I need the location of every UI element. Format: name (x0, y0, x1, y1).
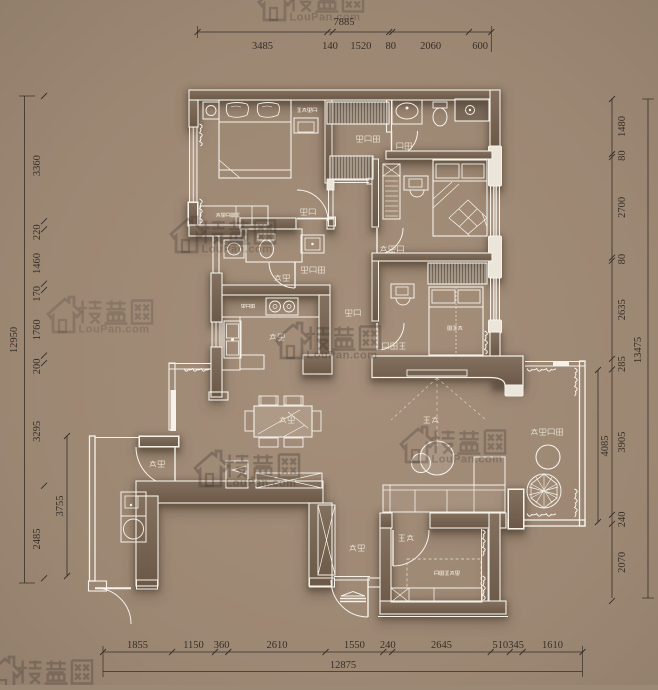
svg-text:13475: 13475 (633, 337, 644, 363)
svg-text:LouPan.com: LouPan.com (201, 244, 272, 256)
svg-text:220: 220 (32, 224, 43, 240)
svg-text:345: 345 (508, 640, 524, 651)
svg-text:2610: 2610 (266, 640, 287, 651)
svg-text:170: 170 (32, 286, 43, 302)
svg-text:80: 80 (385, 41, 396, 52)
svg-text:12875: 12875 (330, 660, 356, 671)
svg-text:2635: 2635 (617, 299, 628, 320)
svg-text:1855: 1855 (127, 640, 148, 651)
svg-text:1520: 1520 (350, 41, 371, 52)
svg-text:2645: 2645 (431, 640, 452, 651)
svg-text:3905: 3905 (617, 432, 628, 453)
svg-text:LouPan.com: LouPan.com (78, 324, 149, 336)
svg-text:3295: 3295 (32, 421, 43, 442)
svg-text:1550: 1550 (344, 640, 365, 651)
svg-text:3360: 3360 (32, 155, 43, 176)
svg-text:12950: 12950 (9, 327, 20, 353)
svg-text:3485: 3485 (252, 41, 273, 52)
svg-text:1610: 1610 (542, 640, 563, 651)
svg-text:600: 600 (472, 41, 488, 52)
svg-text:1480: 1480 (617, 116, 628, 137)
svg-text:80: 80 (617, 150, 628, 161)
svg-text:1150: 1150 (183, 640, 204, 651)
svg-text:2700: 2700 (617, 197, 628, 218)
svg-text:510: 510 (492, 640, 508, 651)
svg-text:2485: 2485 (32, 529, 43, 550)
svg-text:2070: 2070 (617, 552, 628, 573)
svg-text:360: 360 (214, 640, 230, 651)
svg-text:240: 240 (617, 511, 628, 527)
svg-text:2060: 2060 (420, 41, 441, 52)
svg-text:LouPan.com: LouPan.com (306, 350, 377, 362)
svg-text:1760: 1760 (32, 319, 43, 340)
svg-text:200: 200 (32, 358, 43, 374)
svg-text:4085: 4085 (600, 436, 611, 457)
svg-text:285: 285 (617, 356, 628, 372)
svg-text:140: 140 (322, 41, 338, 52)
svg-text:3755: 3755 (55, 496, 66, 517)
svg-text:80: 80 (617, 254, 628, 265)
svg-text:240: 240 (380, 640, 396, 651)
svg-text:1460: 1460 (32, 253, 43, 274)
svg-text:LouPan.com: LouPan.com (225, 478, 296, 490)
svg-text:LouPan.com: LouPan.com (431, 454, 502, 466)
svg-text:7885: 7885 (334, 17, 355, 28)
